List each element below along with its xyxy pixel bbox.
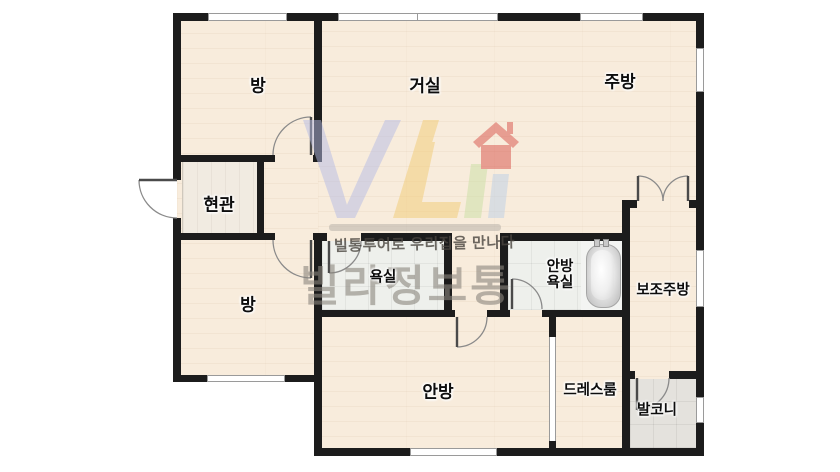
room-label-entrance: 현관 — [203, 191, 234, 216]
room-label-dressroom: 드레스룸 — [563, 379, 616, 400]
room-label-room1: 방 — [250, 72, 266, 97]
room-label-aux-kitchen: 보조주방 — [636, 279, 689, 300]
bathroom-door — [329, 241, 361, 273]
aux-kitchen-double-door — [638, 176, 688, 201]
room-label-bathroom: 욕실 — [370, 266, 397, 287]
room-label-kitchen: 주방 — [604, 68, 635, 93]
room-label-master-bathroom: 안방 욕실 — [547, 259, 574, 291]
room1-door — [273, 117, 311, 155]
room-label-living: 거실 — [409, 72, 440, 97]
floor-plan: 빌통투어로 우리집을 만나다 빌라정보통 방 거실 주방 현관 욕실 안방 욕실… — [0, 0, 840, 472]
room2-door — [273, 240, 311, 278]
room-label-room2: 방 — [240, 291, 256, 316]
master-bathroom-door — [512, 279, 542, 309]
master-bedroom-door — [457, 317, 487, 347]
room-label-balcony: 발코니 — [637, 399, 677, 420]
room-label-master: 안방 — [422, 378, 453, 403]
entrance-door — [139, 180, 177, 218]
